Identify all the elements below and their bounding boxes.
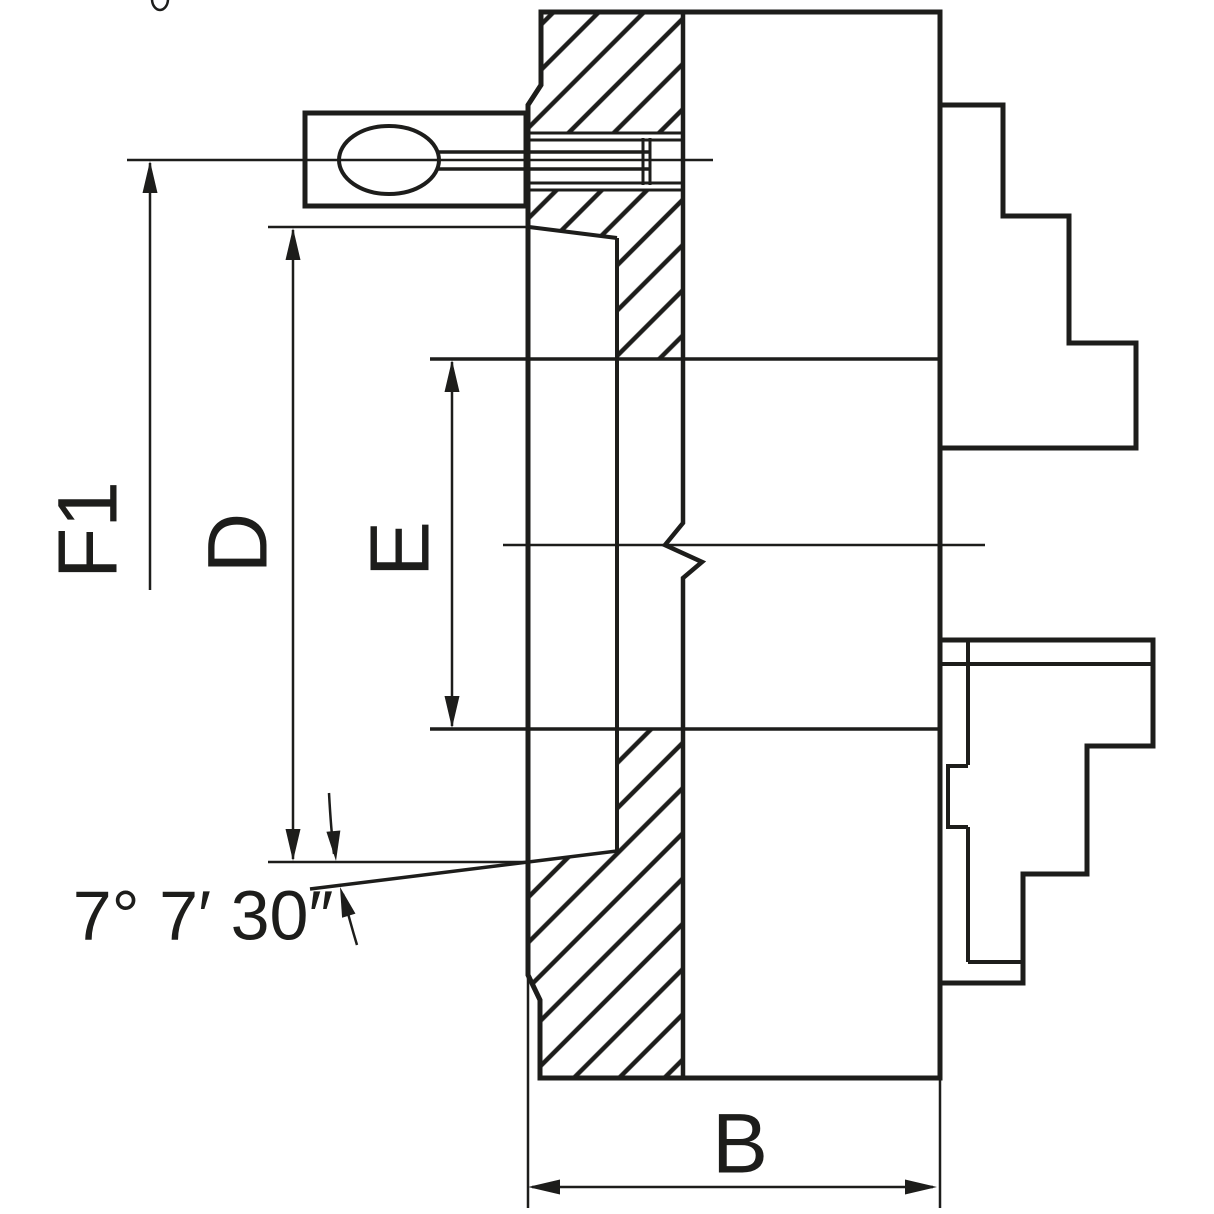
b-arrowhead-left [528,1180,560,1195]
d-arrowhead-down [286,829,301,861]
label-e: E [352,521,446,577]
label-d: D [190,513,284,574]
d-arrowhead-up [286,228,301,260]
dimension-d: D [190,228,300,861]
bottom-jaw-tnut-notch [948,766,968,827]
hatch-flange-top [528,12,683,133]
dimension-e: E [352,360,459,728]
b-arrowhead-right [905,1180,937,1195]
e-arrowhead-down [445,696,460,728]
angle-arrowhead-lower [333,885,355,918]
f1-arrowhead-up [143,161,158,193]
label-f1: F1 [40,481,134,579]
label-b: B [712,1096,768,1190]
dimension-f1: F1 [40,161,157,590]
e-arrowhead-up [445,360,460,392]
angle-annotation: 7° 7′ 30″ [73,793,357,955]
drawing-canvas: F1 D E B 7° 7′ 30″ [0,0,1214,1214]
bottom-jaw-outline [940,640,1153,983]
angle-arrowhead-upper [326,831,343,862]
hatch-flange-middle [528,190,683,359]
top-edge-fragment-glyph [152,0,168,10]
label-angle: 7° 7′ 30″ [73,877,334,955]
technical-drawing-chuck-section: F1 D E B 7° 7′ 30″ [0,0,1214,1214]
top-jaw-outline [940,105,1136,448]
hatch-flange-bottom [528,729,683,1078]
dimension-b: B [528,1096,937,1194]
